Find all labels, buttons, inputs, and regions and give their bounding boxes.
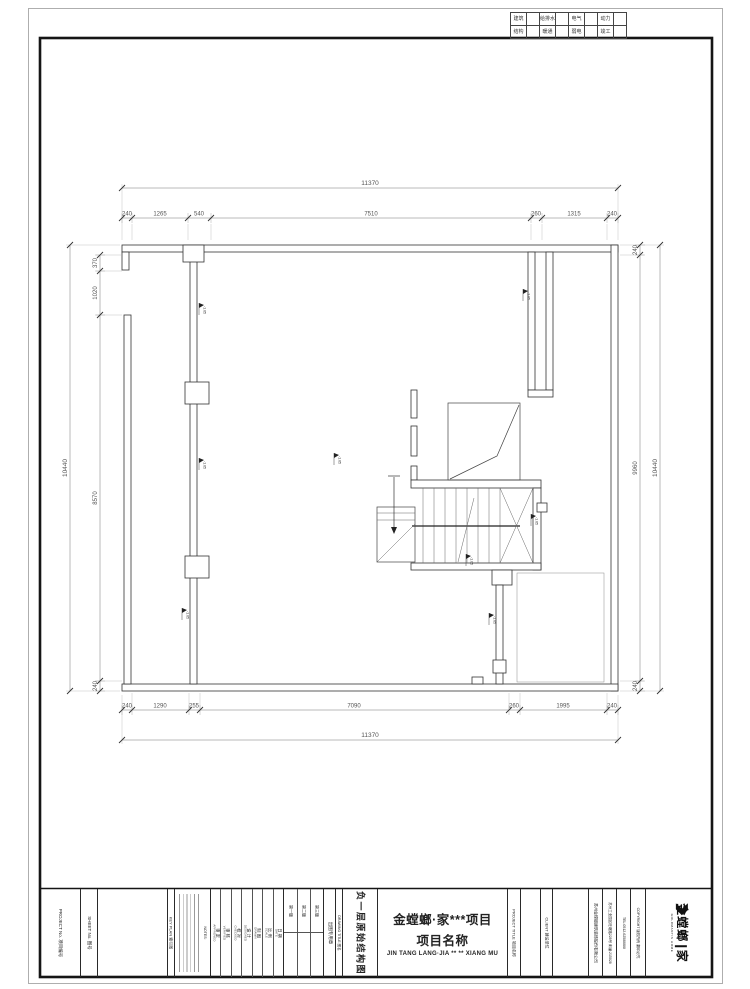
dim-label: 1020 bbox=[93, 286, 99, 300]
title-block: PROJECT No. 项目编号 SHEET No. 图号 KEY PLAN 索… bbox=[40, 889, 712, 977]
dim-bottom: 240 1290 255 7090 260 1995 240 11370 bbox=[119, 693, 621, 744]
dim-label: 8570 bbox=[93, 491, 99, 505]
project-name-line1: 金螳螂·家***项目 bbox=[393, 909, 492, 928]
seal-label: 出图专用章 bbox=[327, 922, 333, 945]
logo-text-cn2: 家 bbox=[674, 950, 689, 963]
discipline-label: 给排水 bbox=[540, 13, 556, 26]
discipline-value bbox=[527, 26, 540, 39]
discipline-label: 弱电 bbox=[569, 26, 585, 39]
dim-label: 240 bbox=[122, 704, 133, 710]
dim-label: 240 bbox=[607, 704, 618, 710]
version-cell: 第一版 bbox=[284, 889, 297, 933]
level-marker-label: -1.05 bbox=[186, 611, 190, 619]
client-box bbox=[552, 889, 588, 977]
stair-lower-flight bbox=[377, 507, 415, 562]
version-label: 第二版 bbox=[302, 905, 307, 917]
version-cell bbox=[310, 933, 323, 977]
drawing-title-label-cell: DRAWING TITLE 图名 bbox=[335, 889, 342, 977]
seal-cell: 出图专用章 bbox=[323, 889, 335, 977]
drawing-title: 负一层原始结构图 bbox=[354, 891, 365, 975]
project-title-label-cell: PROJECT TITLE 项目名称 bbox=[507, 889, 520, 977]
dim-label: 1995 bbox=[556, 704, 570, 710]
key-plan-box bbox=[97, 889, 167, 977]
stair-up-arrow bbox=[388, 476, 400, 534]
dim-label: 260 bbox=[509, 704, 520, 710]
dim-label: 240 bbox=[93, 680, 99, 691]
level-marker-label: -1.05 bbox=[470, 557, 474, 565]
level-marker-label: -1.05 bbox=[493, 616, 497, 624]
version-cell: 第二版 bbox=[297, 889, 310, 933]
inner-room-outline bbox=[517, 573, 604, 682]
level-markers: -1.05 -1.05 -1.05 -1.05 -1.05 -1.05 -1.0… bbox=[182, 289, 539, 625]
discipline-value bbox=[614, 26, 627, 39]
sign-col-designed: 设 计DESIGNED bbox=[241, 889, 251, 977]
version-label: 第三版 bbox=[315, 905, 320, 917]
discipline-value bbox=[527, 13, 540, 26]
sign-label-en: CHECKED bbox=[232, 925, 235, 940]
company-copyright-col: COPYRIGHT 版权所有 翻印必究 bbox=[630, 889, 645, 977]
company-copyright: COPYRIGHT 版权所有 翻印必究 bbox=[636, 908, 640, 959]
version-cell bbox=[284, 933, 297, 977]
company-name: 苏州金螳螂建筑装饰股份有限公司 bbox=[593, 903, 598, 963]
drawing-title-label: DRAWING TITLE 图名 bbox=[337, 915, 341, 950]
sign-label-en: DATE bbox=[274, 928, 277, 938]
dim-label: 11370 bbox=[361, 732, 379, 739]
dim-right: 240 9960 240 10440 bbox=[620, 242, 664, 694]
sheet-no-label: SHEET No. 图号 bbox=[86, 916, 92, 949]
sign-col-scale: 比 例SCALE bbox=[262, 889, 272, 977]
sign-label-cn: 制 图 bbox=[257, 927, 262, 938]
client-label-cell: CLIENT 建设单位 bbox=[540, 889, 552, 977]
sign-label-cn: 日 期 bbox=[277, 928, 282, 938]
dim-label: 1290 bbox=[153, 704, 167, 710]
dim-label: 260 bbox=[531, 212, 542, 218]
project-no-label: PROJECT No. 项目编号 bbox=[57, 909, 63, 957]
version-label: 第一版 bbox=[288, 905, 293, 917]
logo-text-en: GOLDMANTIS HOME bbox=[669, 914, 673, 953]
level-marker-label: -1.05 bbox=[203, 461, 207, 469]
dim-label: 240 bbox=[607, 212, 618, 218]
goldmantis-logo-icon bbox=[675, 903, 689, 917]
dim-label: 370 bbox=[93, 257, 99, 268]
project-title-label: PROJECT TITLE 项目名称 bbox=[512, 909, 517, 957]
dim-top: 11370 240 1265 540 7510 260 1315 240 bbox=[119, 180, 621, 240]
spacer-cell bbox=[520, 889, 540, 977]
sign-label-en: DESIGNED bbox=[243, 925, 246, 941]
dim-left: 370 1020 8570 240 10440 bbox=[62, 242, 122, 694]
dim-label: 240 bbox=[122, 212, 133, 218]
logo-divider bbox=[675, 945, 687, 947]
discipline-value bbox=[614, 13, 627, 26]
dim-label: 1315 bbox=[567, 212, 581, 218]
walls bbox=[122, 245, 618, 691]
dim-label: 7090 bbox=[347, 704, 361, 710]
discipline-value bbox=[585, 26, 598, 39]
sign-label-en: VERIFIED bbox=[222, 926, 225, 941]
key-plan-label: KEY PLAN 索引图 bbox=[169, 917, 174, 950]
dim-label: 240 bbox=[633, 244, 639, 255]
discipline-label: 竣工 bbox=[598, 26, 614, 39]
project-name-line2: 项目名称 bbox=[416, 930, 468, 949]
sign-col-verified: 审 核VERIFIED bbox=[220, 889, 230, 977]
break-line bbox=[458, 498, 474, 562]
dim-label: 10440 bbox=[652, 459, 659, 477]
discipline-label: 电气 bbox=[569, 13, 585, 26]
signature-columns: 审 定APPROVED 审 核VERIFIED 校 对CHECKED 设 计DE… bbox=[210, 889, 283, 977]
version-cell: 第三版 bbox=[310, 889, 323, 933]
discipline-label: 暖通 bbox=[540, 26, 556, 39]
logo-cell: 金螳螂 家 GOLDMANTIS HOME bbox=[645, 889, 712, 977]
dim-label: 1265 bbox=[153, 212, 167, 218]
discipline-table: 建筑 给排水 电气 动力 结构 暖通 弱电 竣工 bbox=[510, 12, 627, 39]
drawing-sheet: -1.05 -1.05 -1.05 -1.05 -1.05 -1.05 -1.0… bbox=[0, 0, 750, 989]
level-marker-label: -1.05 bbox=[203, 306, 207, 314]
dim-label: 9960 bbox=[633, 461, 639, 475]
dim-label: 10440 bbox=[62, 459, 69, 477]
dim-label: 540 bbox=[194, 212, 205, 218]
notes-text-lines bbox=[179, 894, 200, 972]
drawing-title-cell: 负一层原始结构图 bbox=[342, 889, 377, 977]
discipline-value bbox=[585, 13, 598, 26]
company-name-col: 苏州金螳螂建筑装饰股份有限公司 bbox=[588, 889, 602, 977]
sheet-no-cell: SHEET No. 图号 bbox=[80, 889, 97, 977]
key-plan-label-cell: KEY PLAN 索引图 bbox=[167, 889, 174, 977]
level-marker-label: -1.05 bbox=[535, 517, 539, 525]
sign-label-en: APPROVED bbox=[211, 924, 214, 941]
project-title-cell: 金螳螂·家***项目 项目名称 JIN TANG LANG·JIA ** ** … bbox=[377, 889, 507, 977]
notes-title-col: NOTES: bbox=[201, 889, 209, 977]
discipline-label: 结构 bbox=[511, 26, 527, 39]
company-address-col: 苏州工业园区旺墩路228号 邮编:215028 bbox=[602, 889, 616, 977]
sign-col-date: 日 期DATE bbox=[273, 889, 283, 977]
level-marker-label: -1.05 bbox=[338, 456, 342, 464]
project-name-pinyin: JIN TANG LANG·JIA ** ** XIANG MU bbox=[387, 951, 498, 957]
sign-col-approved: 审 定APPROVED bbox=[211, 889, 220, 977]
notes-title: NOTES: bbox=[203, 926, 207, 939]
client-label: CLIENT 建设单位 bbox=[544, 917, 549, 948]
sheet-outer-border bbox=[29, 9, 723, 984]
level-marker-label: -1.05 bbox=[527, 292, 531, 300]
discipline-label: 建筑 bbox=[511, 13, 527, 26]
dim-label: 240 bbox=[633, 680, 639, 691]
dim-label: 7510 bbox=[364, 212, 378, 218]
company-tel: TEL:0512-62588888 bbox=[621, 917, 625, 949]
floor-plan-drawing: -1.05 -1.05 -1.05 -1.05 -1.05 -1.05 -1.0… bbox=[0, 0, 750, 989]
version-cell bbox=[297, 933, 310, 977]
company-tel-col: TEL:0512-62588888 bbox=[616, 889, 630, 977]
discipline-value bbox=[556, 13, 569, 26]
sign-col-drawn: 制 图DRAWN bbox=[252, 889, 262, 977]
version-grid: 第一版 第二版 第三版 bbox=[283, 889, 323, 977]
sign-label-en: SCALE bbox=[263, 928, 266, 938]
discipline-label: 动力 bbox=[598, 13, 614, 26]
notes-cell: NOTES: bbox=[174, 889, 210, 977]
company-address: 苏州工业园区旺墩路228号 邮编:215028 bbox=[607, 902, 611, 963]
dim-label: 11370 bbox=[361, 180, 379, 187]
discipline-value bbox=[556, 26, 569, 39]
dim-label: 255 bbox=[189, 704, 200, 710]
sign-label-en: DRAWN bbox=[253, 927, 256, 938]
sign-col-checked: 校 对CHECKED bbox=[231, 889, 241, 977]
project-no-cell: PROJECT No. 项目编号 bbox=[40, 889, 80, 977]
